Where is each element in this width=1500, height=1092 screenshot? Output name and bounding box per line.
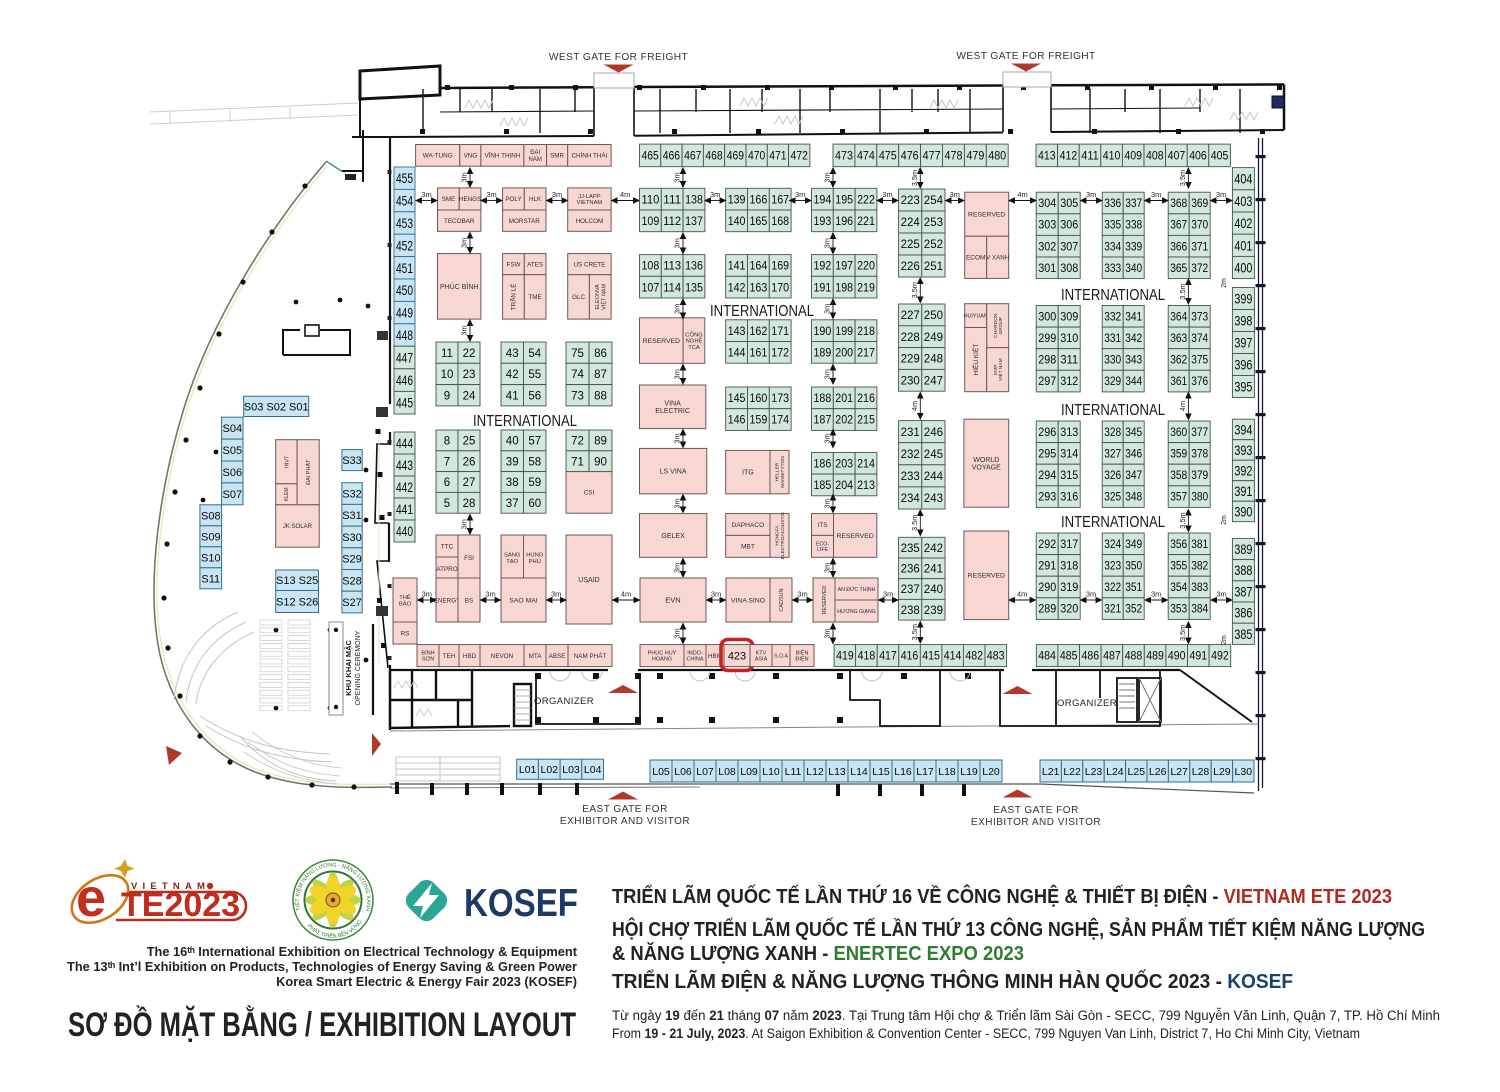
svg-text:INTERNATIONAL: INTERNATIONAL	[710, 303, 814, 320]
svg-text:440: 440	[396, 523, 413, 539]
svg-text:US CRETE: US CRETE	[573, 261, 605, 268]
svg-text:340: 340	[1125, 263, 1142, 275]
svg-text:492: 492	[1211, 651, 1229, 663]
svg-text:3m: 3m	[1086, 590, 1096, 599]
svg-text:3m: 3m	[1086, 190, 1096, 199]
svg-text:72: 72	[571, 436, 584, 448]
svg-text:S04: S04	[223, 423, 243, 435]
svg-text:9: 9	[444, 390, 450, 402]
svg-text:476: 476	[901, 151, 919, 163]
svg-text:S32: S32	[342, 489, 362, 501]
svg-text:396: 396	[1234, 357, 1252, 373]
svg-text:L26: L26	[1149, 766, 1167, 778]
svg-text:37: 37	[506, 498, 519, 510]
svg-text:418: 418	[858, 651, 876, 663]
svg-text:315: 315	[1060, 470, 1078, 482]
svg-text:107: 107	[642, 282, 660, 294]
svg-text:HBD: HBD	[463, 653, 477, 660]
svg-text:485: 485	[1060, 651, 1078, 663]
svg-text:TTC: TTC	[441, 543, 454, 550]
svg-text:S09: S09	[201, 531, 221, 543]
svg-text:S07: S07	[223, 489, 243, 501]
svg-text:57: 57	[528, 436, 541, 448]
svg-text:135: 135	[685, 282, 703, 294]
svg-text:MORSTAR: MORSTAR	[509, 218, 540, 225]
svg-text:7: 7	[444, 456, 450, 468]
svg-text:3m: 3m	[797, 590, 807, 599]
svg-text:3m: 3m	[795, 190, 805, 199]
svg-text:Từ ngày 19 đến 21 tháng 07 năm: Từ ngày 19 đến 21 tháng 07 năm 2023. Tại…	[612, 1008, 1440, 1023]
svg-text:374: 374	[1191, 333, 1209, 345]
svg-text:403: 403	[1234, 193, 1252, 209]
svg-text:3m: 3m	[882, 190, 892, 199]
svg-text:INTERNATIONAL: INTERNATIONAL	[1061, 402, 1165, 419]
svg-text:4m: 4m	[910, 401, 919, 411]
svg-text:220: 220	[857, 261, 875, 273]
svg-text:3m: 3m	[673, 433, 682, 443]
svg-text:203: 203	[835, 458, 853, 470]
svg-text:L01: L01	[519, 764, 537, 776]
svg-text:380: 380	[1191, 492, 1208, 504]
svg-text:328: 328	[1104, 427, 1121, 439]
svg-text:317: 317	[1060, 539, 1078, 551]
svg-text:357: 357	[1170, 492, 1187, 504]
svg-text:VĨNH THỊNH: VĨNH THỊNH	[484, 151, 520, 160]
svg-text:3m: 3m	[823, 369, 832, 379]
svg-text:297: 297	[1038, 376, 1056, 388]
svg-text:309: 309	[1060, 311, 1078, 323]
svg-text:302: 302	[1038, 241, 1056, 253]
svg-text:2m: 2m	[1221, 278, 1228, 288]
svg-text:291: 291	[1038, 561, 1056, 573]
svg-text:204: 204	[835, 480, 853, 492]
svg-text:489: 489	[1146, 651, 1164, 663]
svg-text:483: 483	[987, 651, 1005, 663]
svg-text:376: 376	[1191, 376, 1208, 388]
svg-text:3m: 3m	[823, 433, 832, 443]
svg-text:PHÚ: PHÚ	[529, 558, 541, 565]
svg-text:3m: 3m	[823, 498, 832, 508]
svg-text:447: 447	[396, 350, 413, 366]
svg-text:4m: 4m	[1017, 190, 1027, 199]
svg-text:226: 226	[901, 261, 920, 273]
svg-text:394: 394	[1234, 422, 1252, 438]
svg-text:292: 292	[1038, 539, 1056, 551]
svg-text:305: 305	[1060, 198, 1078, 210]
svg-text:22: 22	[463, 348, 476, 360]
svg-text:415: 415	[922, 651, 940, 663]
svg-text:HENGS: HENGS	[459, 196, 481, 203]
svg-text:S30: S30	[342, 532, 362, 544]
svg-text:241: 241	[924, 564, 943, 576]
svg-text:e: e	[76, 868, 106, 928]
svg-text:INTERNATIONAL: INTERNATIONAL	[473, 413, 577, 430]
svg-text:26: 26	[463, 456, 476, 468]
svg-text:90: 90	[594, 456, 607, 468]
svg-text:ĐIỆN: ĐIỆN	[795, 655, 808, 663]
svg-text:321: 321	[1104, 604, 1121, 616]
svg-text:482: 482	[965, 651, 983, 663]
svg-text:344: 344	[1125, 376, 1143, 388]
svg-text:3m: 3m	[1151, 190, 1161, 199]
svg-text:325: 325	[1104, 492, 1121, 504]
svg-text:PHÚC BÌNH: PHÚC BÌNH	[440, 282, 479, 291]
svg-text:3m: 3m	[485, 590, 495, 599]
svg-text:225: 225	[901, 239, 920, 251]
svg-text:HỘI CHỢ TRIỂN LÃM QUỐC TẾ LẦN: HỘI CHỢ TRIỂN LÃM QUỐC TẾ LẦN THỨ 13 CÔN…	[612, 917, 1425, 941]
svg-text:EAST GATE FOR: EAST GATE FOR	[582, 804, 668, 815]
svg-text:WORLD: WORLD	[973, 457, 999, 464]
svg-text:217: 217	[857, 348, 875, 360]
svg-text:346: 346	[1125, 449, 1142, 461]
svg-text:477: 477	[923, 151, 941, 163]
svg-text:S03 S02 S01: S03 S02 S01	[244, 401, 309, 413]
svg-text:218: 218	[857, 326, 875, 338]
svg-text:JK SOLAR: JK SOLAR	[283, 524, 313, 530]
svg-text:86: 86	[594, 348, 607, 360]
svg-text:43: 43	[506, 348, 519, 360]
svg-text:399: 399	[1234, 291, 1252, 307]
svg-text:391: 391	[1234, 483, 1252, 499]
svg-text:AN ĐỨC THỊNH: AN ĐỨC THỊNH	[838, 586, 876, 593]
svg-text:345: 345	[1125, 427, 1142, 439]
svg-text:3.5m: 3.5m	[1178, 625, 1187, 641]
svg-text:392: 392	[1234, 463, 1252, 479]
svg-text:INTERNATIONAL: INTERNATIONAL	[1061, 287, 1165, 304]
svg-text:473: 473	[835, 151, 853, 163]
svg-text:L30: L30	[1235, 766, 1253, 778]
svg-text:239: 239	[924, 605, 943, 617]
svg-text:NGHỆ: NGHỆ	[686, 337, 703, 345]
svg-text:373: 373	[1191, 311, 1208, 323]
svg-text:248: 248	[924, 354, 943, 366]
svg-text:3m: 3m	[673, 172, 682, 182]
svg-text:HONGFA: HONGFA	[775, 525, 781, 546]
svg-text:VINA SINO: VINA SINO	[731, 597, 765, 604]
svg-text:375: 375	[1191, 355, 1208, 367]
svg-text:487: 487	[1103, 651, 1121, 663]
svg-text:334: 334	[1104, 241, 1122, 253]
svg-text:367: 367	[1170, 220, 1187, 232]
svg-text:417: 417	[879, 651, 897, 663]
svg-text:28: 28	[463, 498, 476, 510]
svg-text:400: 400	[1234, 260, 1252, 276]
svg-text:3m: 3m	[673, 628, 682, 638]
svg-text:MANNITYTON: MANNITYTON	[780, 456, 786, 488]
svg-text:169: 169	[771, 261, 789, 273]
svg-text:THẾ: THẾ	[399, 594, 411, 601]
svg-text:3.5m: 3.5m	[910, 170, 919, 186]
svg-text:448: 448	[396, 327, 413, 343]
svg-text:71: 71	[571, 456, 584, 468]
svg-text:ELEONVA: ELEONVA	[595, 284, 601, 310]
svg-text:324: 324	[1104, 539, 1122, 551]
svg-text:RESERVED: RESERVED	[643, 338, 680, 345]
svg-text:249: 249	[924, 332, 943, 344]
svg-text:290: 290	[1038, 582, 1056, 594]
svg-text:3m: 3m	[823, 628, 832, 638]
svg-text:S29: S29	[342, 554, 362, 566]
svg-text:478: 478	[945, 151, 963, 163]
svg-text:192: 192	[814, 261, 832, 273]
svg-text:238: 238	[901, 605, 920, 617]
svg-text:NAM: NAM	[529, 157, 542, 163]
svg-text:318: 318	[1060, 561, 1078, 573]
svg-text:S27: S27	[342, 597, 362, 609]
svg-text:350: 350	[1125, 561, 1142, 573]
svg-text:KLEM: KLEM	[284, 487, 290, 501]
svg-text:3m: 3m	[552, 190, 562, 199]
svg-text:307: 307	[1060, 241, 1078, 253]
svg-text:237: 237	[901, 584, 920, 596]
svg-text:ITS: ITS	[818, 522, 828, 529]
svg-text:L07: L07	[696, 766, 714, 778]
svg-text:L09: L09	[740, 766, 758, 778]
svg-text:BÌNH: BÌNH	[421, 650, 434, 657]
svg-text:390: 390	[1234, 504, 1252, 520]
svg-text:370: 370	[1191, 220, 1208, 232]
svg-text:60: 60	[528, 498, 541, 510]
svg-text:TECOBAR: TECOBAR	[444, 218, 475, 225]
svg-text:74: 74	[571, 369, 584, 381]
svg-text:HƯƠNG GIANG: HƯƠNG GIANG	[837, 609, 876, 615]
svg-text:332: 332	[1104, 311, 1121, 323]
svg-text:3m: 3m	[950, 190, 960, 199]
svg-text:L20: L20	[982, 766, 1000, 778]
svg-text:3m: 3m	[421, 190, 431, 199]
svg-text:OPENING CEREMONY: OPENING CEREMONY	[355, 630, 362, 705]
svg-text:3m: 3m	[710, 190, 720, 199]
svg-text:382: 382	[1191, 561, 1208, 573]
svg-text:3m: 3m	[673, 498, 682, 508]
svg-text:162: 162	[750, 326, 768, 338]
svg-text:3m: 3m	[673, 563, 682, 573]
svg-text:55: 55	[528, 369, 541, 381]
svg-text:472: 472	[791, 151, 808, 163]
svg-text:359: 359	[1170, 449, 1187, 461]
svg-text:364: 364	[1170, 311, 1188, 323]
svg-text:L25: L25	[1128, 766, 1146, 778]
svg-text:GELEX: GELEX	[661, 533, 685, 540]
svg-text:198: 198	[835, 282, 853, 294]
svg-text:310: 310	[1060, 333, 1078, 345]
svg-text:73: 73	[571, 390, 584, 402]
svg-text:348: 348	[1125, 492, 1142, 504]
svg-text:3m: 3m	[460, 325, 469, 335]
svg-text:402: 402	[1234, 215, 1252, 231]
svg-text:330: 330	[1104, 355, 1121, 367]
svg-text:223: 223	[901, 195, 920, 207]
svg-text:296: 296	[1038, 427, 1056, 439]
svg-text:381: 381	[1191, 539, 1208, 551]
svg-text:251: 251	[924, 261, 943, 273]
svg-text:336: 336	[1104, 198, 1121, 210]
svg-text:186: 186	[814, 458, 832, 470]
svg-text:475: 475	[879, 151, 897, 163]
svg-text:HUNG: HUNG	[526, 552, 544, 558]
svg-text:312: 312	[1060, 376, 1078, 388]
svg-text:58: 58	[528, 456, 541, 468]
svg-text:3m: 3m	[551, 590, 561, 599]
svg-text:441: 441	[396, 501, 413, 517]
svg-text:EXHIBITOR AND VISITOR: EXHIBITOR AND VISITOR	[560, 816, 690, 827]
svg-text:387: 387	[1234, 583, 1252, 599]
svg-text:3m: 3m	[823, 172, 832, 182]
svg-text:187: 187	[814, 415, 832, 427]
svg-text:L21: L21	[1042, 766, 1060, 778]
svg-text:24: 24	[463, 390, 476, 402]
svg-text:219: 219	[857, 282, 875, 294]
svg-text:454: 454	[396, 193, 413, 209]
svg-text:ATES: ATES	[527, 261, 543, 268]
svg-text:419: 419	[836, 651, 854, 663]
svg-text:172: 172	[771, 348, 789, 360]
svg-text:3m: 3m	[460, 238, 469, 248]
svg-text:409: 409	[1124, 151, 1142, 163]
svg-text:RESERVED: RESERVED	[822, 586, 828, 615]
svg-text:V XANH: V XANH	[986, 255, 1009, 262]
svg-text:ĐẠI: ĐẠI	[530, 150, 540, 156]
svg-text:HOÀNG: HOÀNG	[652, 656, 672, 663]
svg-text:410: 410	[1103, 151, 1121, 163]
svg-text:3m: 3m	[823, 563, 832, 573]
svg-text:243: 243	[924, 493, 943, 505]
svg-text:298: 298	[1038, 355, 1056, 367]
svg-text:S06: S06	[223, 467, 243, 479]
svg-text:161: 161	[750, 348, 768, 360]
svg-text:WEST GATE FOR FREIGHT: WEST GATE FOR FREIGHT	[549, 52, 688, 63]
svg-text:ELECTRIC: ELECTRIC	[655, 408, 690, 415]
svg-text:RS: RS	[401, 630, 410, 637]
svg-text:40: 40	[506, 436, 519, 448]
svg-text:171: 171	[771, 326, 789, 338]
svg-text:3m: 3m	[823, 304, 832, 314]
svg-text:RESERVED: RESERVED	[836, 533, 873, 540]
svg-text:3m: 3m	[1216, 190, 1226, 199]
svg-text:200: 200	[835, 348, 853, 360]
svg-text:362: 362	[1170, 355, 1187, 367]
svg-text:HOLCOM: HOLCOM	[576, 218, 604, 225]
svg-text:ORGANIZER: ORGANIZER	[534, 696, 594, 707]
svg-text:295: 295	[1038, 449, 1056, 461]
svg-text:4m: 4m	[621, 590, 631, 599]
svg-text:319: 319	[1060, 582, 1078, 594]
svg-text:313: 313	[1060, 427, 1078, 439]
svg-text:213: 213	[857, 480, 875, 492]
svg-text:SMR: SMR	[550, 153, 564, 160]
svg-text:299: 299	[1038, 333, 1056, 345]
svg-text:TRIỂN LÃM QUỐC TẾ LẦN THỨ 16 V: TRIỂN LÃM QUỐC TẾ LẦN THỨ 16 VỀ CÔNG NGH…	[612, 884, 1392, 908]
svg-text:141: 141	[728, 261, 746, 273]
svg-text:S12 S26: S12 S26	[276, 597, 318, 609]
svg-text:S10: S10	[201, 552, 221, 564]
svg-text:304: 304	[1038, 198, 1057, 210]
svg-text:L04: L04	[584, 764, 602, 776]
svg-text:LIFE: LIFE	[817, 547, 828, 553]
svg-text:CADSUN: CADSUN	[779, 588, 785, 611]
svg-text:3.5m: 3.5m	[1178, 512, 1187, 528]
svg-text:306: 306	[1060, 220, 1078, 232]
svg-text:385: 385	[1234, 626, 1252, 642]
svg-text:465: 465	[641, 151, 658, 163]
svg-text:301: 301	[1038, 263, 1056, 275]
svg-text:3m: 3m	[673, 304, 682, 314]
svg-text:VIỆT NAM: VIỆT NAM	[599, 284, 607, 310]
svg-text:347: 347	[1125, 470, 1142, 482]
svg-text:ORGANIZER: ORGANIZER	[1057, 698, 1117, 709]
svg-text:486: 486	[1082, 651, 1100, 663]
svg-text:PHÚC HUY: PHÚC HUY	[648, 650, 677, 657]
svg-text:S.O.A: S.O.A	[774, 654, 788, 660]
svg-text:3.5m: 3.5m	[910, 515, 919, 531]
svg-text:POLY: POLY	[505, 196, 522, 203]
svg-text:KHU KHAI MẬC: KHU KHAI MẬC	[344, 640, 353, 696]
svg-text:163: 163	[750, 282, 768, 294]
svg-text:470: 470	[748, 151, 765, 163]
svg-text:ECOM: ECOM	[966, 255, 986, 262]
svg-text:3.5m: 3.5m	[1178, 283, 1187, 299]
svg-text:471: 471	[769, 151, 786, 163]
svg-text:455: 455	[396, 170, 413, 186]
svg-text:326: 326	[1104, 470, 1121, 482]
svg-text:4m: 4m	[620, 190, 630, 199]
svg-text:189: 189	[814, 348, 832, 360]
svg-text:164: 164	[750, 261, 768, 273]
svg-text:3.5m: 3.5m	[910, 624, 919, 640]
svg-text:6: 6	[444, 477, 450, 489]
svg-text:KOSEF: KOSEF	[464, 882, 578, 925]
svg-text:253: 253	[924, 217, 943, 229]
svg-text:114: 114	[663, 282, 681, 294]
svg-text:4m: 4m	[1178, 401, 1187, 411]
svg-text:308: 308	[1060, 263, 1078, 275]
svg-text:442: 442	[396, 479, 413, 495]
svg-text:222: 222	[857, 194, 875, 206]
svg-text:39: 39	[506, 456, 519, 468]
svg-text:343: 343	[1125, 355, 1142, 367]
svg-text:138: 138	[685, 194, 703, 206]
svg-text:S28: S28	[342, 575, 362, 587]
svg-text:411: 411	[1081, 151, 1099, 163]
svg-text:HLK: HLK	[529, 196, 542, 203]
svg-text:DAPHACO: DAPHACO	[732, 522, 765, 529]
svg-text:146: 146	[728, 415, 746, 427]
svg-text:75: 75	[571, 348, 584, 360]
svg-text:SÁNG: SÁNG	[504, 551, 521, 558]
svg-text:CHARDON: CHARDON	[993, 313, 999, 338]
svg-text:& NĂNG LƯỢNG XANH - ENERTEC EX: & NĂNG LƯỢNG XANH - ENERTEC EXPO 2023	[612, 942, 1024, 965]
svg-text:363: 363	[1170, 333, 1187, 345]
svg-text:FSW: FSW	[507, 261, 521, 268]
svg-text:LS VINA: LS VINA	[660, 469, 687, 476]
svg-text:190: 190	[814, 326, 832, 338]
svg-text:TEH: TEH	[443, 653, 456, 660]
svg-text:229: 229	[901, 354, 920, 366]
svg-text:5: 5	[444, 498, 450, 510]
svg-text:300: 300	[1038, 311, 1056, 323]
svg-text:491: 491	[1190, 651, 1208, 663]
svg-text:JJ-LAPP: JJ-LAPP	[578, 194, 601, 200]
svg-text:397: 397	[1234, 335, 1252, 351]
svg-text:341: 341	[1125, 311, 1142, 323]
svg-text:379: 379	[1191, 470, 1208, 482]
svg-text:159: 159	[750, 415, 768, 427]
svg-text:337: 337	[1125, 198, 1142, 210]
svg-text:3m: 3m	[711, 590, 721, 599]
svg-text:ITG: ITG	[742, 470, 754, 477]
svg-text:395: 395	[1234, 379, 1252, 395]
svg-text:ELECTROACOUSTIC: ELECTROACOUSTIC	[780, 511, 786, 559]
